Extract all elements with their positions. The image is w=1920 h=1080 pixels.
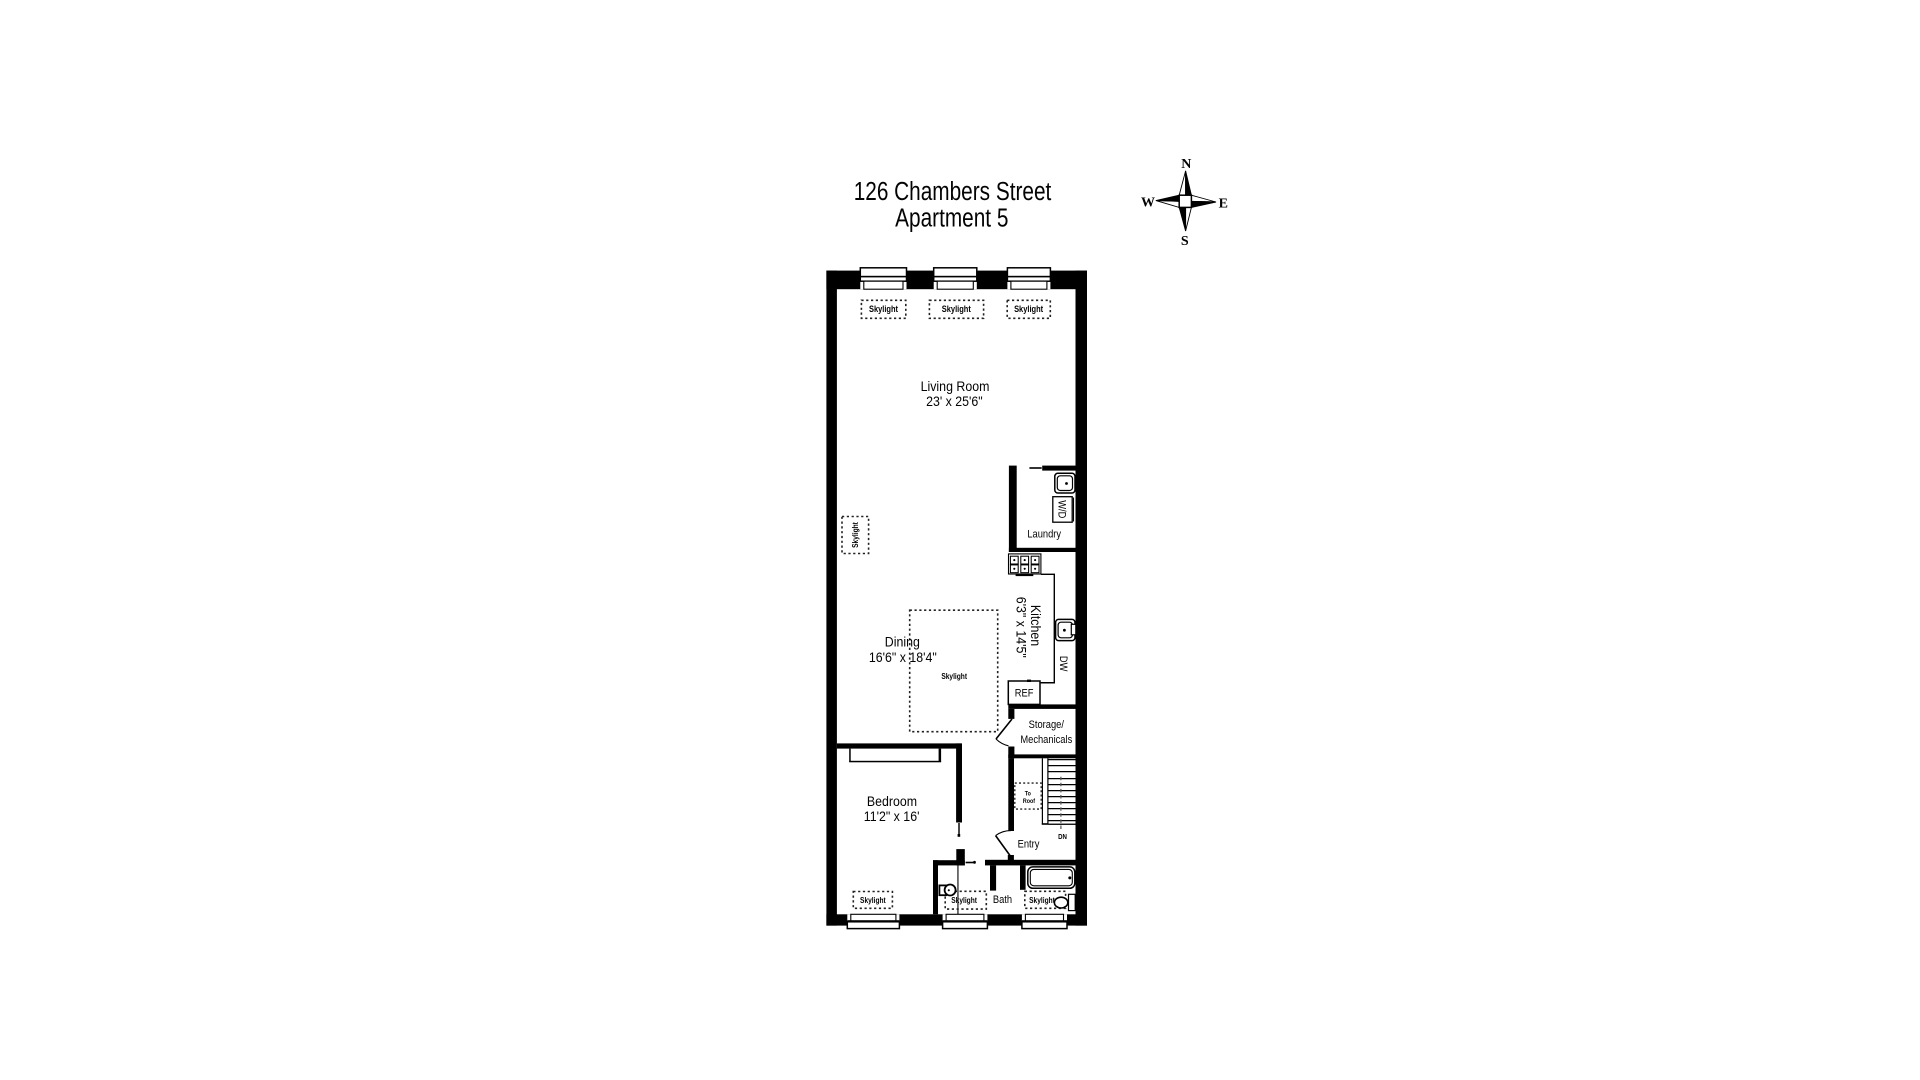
svg-text:Skylight: Skylight <box>1014 304 1043 314</box>
svg-text:Skylight: Skylight <box>869 304 898 314</box>
svg-text:Mechanicals: Mechanicals <box>1020 734 1072 746</box>
svg-text:Skylight: Skylight <box>951 895 977 905</box>
svg-text:W/D: W/D <box>1055 500 1067 518</box>
svg-text:Laundry: Laundry <box>1027 529 1062 541</box>
svg-text:Skylight: Skylight <box>1029 896 1055 906</box>
svg-text:Skylight: Skylight <box>942 304 971 314</box>
svg-text:Bath: Bath <box>993 894 1012 906</box>
svg-text:11'2" x 16': 11'2" x 16' <box>864 808 920 824</box>
svg-text:Apartment 5: Apartment 5 <box>895 203 1008 232</box>
svg-text:DW: DW <box>1057 656 1069 672</box>
svg-text:16'6" x 18'4": 16'6" x 18'4" <box>869 649 937 665</box>
svg-text:126 Chambers Street: 126 Chambers Street <box>854 177 1052 206</box>
svg-text:Skylight: Skylight <box>941 672 967 682</box>
svg-text:Kitchen: Kitchen <box>1028 605 1044 646</box>
svg-text:DN: DN <box>1058 834 1067 842</box>
svg-text:Living Room: Living Room <box>921 378 990 394</box>
svg-text:Dining: Dining <box>885 634 920 650</box>
svg-text:S: S <box>1181 234 1189 249</box>
svg-text:Entry: Entry <box>1018 839 1041 851</box>
svg-text:23' x 25'6": 23' x 25'6" <box>926 393 983 409</box>
svg-text:Roof: Roof <box>1023 799 1035 805</box>
svg-text:To: To <box>1025 791 1032 797</box>
svg-text:E: E <box>1219 196 1228 211</box>
svg-text:Storage/: Storage/ <box>1029 719 1064 731</box>
svg-text:6'3" x 14'5": 6'3" x 14'5" <box>1013 597 1029 658</box>
svg-text:REF: REF <box>1015 688 1034 700</box>
svg-text:Skylight: Skylight <box>850 522 860 548</box>
svg-text:N: N <box>1181 157 1191 172</box>
svg-text:W: W <box>1141 196 1155 211</box>
svg-text:Skylight: Skylight <box>860 895 886 905</box>
svg-text:Bedroom: Bedroom <box>867 793 917 809</box>
